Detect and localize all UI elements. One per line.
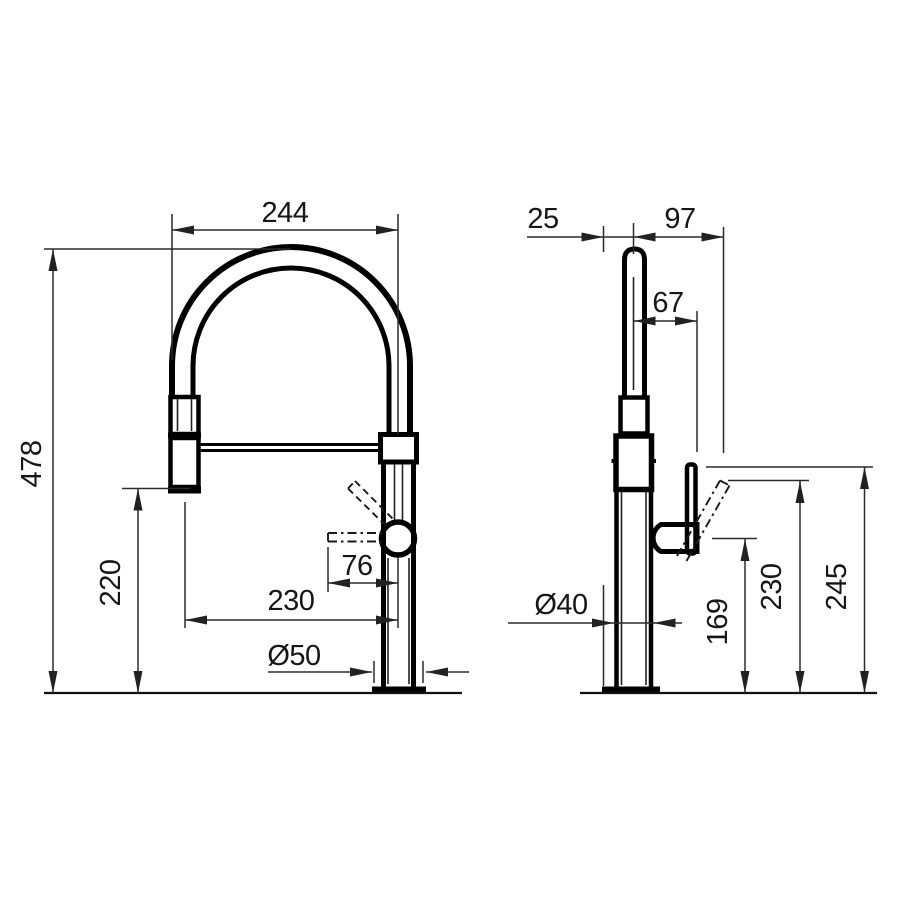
dim-50: Ø50	[267, 640, 469, 683]
spray-head-upper	[171, 397, 199, 434]
dim-label-230-side: 230	[756, 564, 788, 611]
arrow-up	[796, 481, 805, 503]
dim-label-76: 76	[341, 550, 372, 582]
spray-head-lower	[171, 438, 199, 487]
dim-230-side: 230	[728, 481, 809, 694]
arrow-right	[376, 616, 398, 625]
dim-40: Ø40	[508, 589, 682, 628]
dim-label-245: 245	[821, 564, 853, 611]
dim-label-25: 25	[527, 203, 558, 235]
arrow-down	[49, 671, 58, 693]
arrow-up	[741, 539, 750, 561]
arrow-down	[741, 671, 750, 693]
arrow-left	[654, 619, 676, 628]
arrow-right	[376, 579, 398, 588]
handle-lever-side	[687, 465, 696, 554]
dim-label-478: 478	[16, 441, 48, 488]
dim-label-244: 244	[262, 197, 309, 229]
spout-inner-arc	[193, 268, 389, 366]
collar-side	[616, 436, 652, 490]
technical-drawing-page: 244 478 220 230	[0, 0, 900, 900]
dim-label-169: 169	[702, 599, 734, 646]
dim-220: 220	[95, 489, 190, 694]
dim-label-97: 97	[664, 203, 695, 235]
arrow-down	[796, 671, 805, 693]
front-view: 244 478 220 230	[16, 197, 469, 694]
arrow-right	[350, 668, 372, 677]
side-view: 25 97 67 Ø40 169	[508, 203, 877, 694]
arrow-left	[426, 668, 448, 677]
arrow-left	[172, 226, 194, 235]
dim-478: 478	[16, 249, 291, 693]
handle-phantom-horizontal	[328, 533, 383, 542]
dim-label-220: 220	[95, 560, 127, 607]
arrow-down	[134, 671, 143, 693]
faucet-front-body	[168, 247, 426, 694]
arrow-left	[634, 233, 656, 242]
dim-label-67: 67	[652, 287, 683, 319]
arrow-left	[185, 616, 207, 625]
collar-front	[381, 435, 417, 463]
dim-label-40: Ø40	[534, 589, 587, 621]
arrow-right-2	[702, 233, 724, 242]
dim-label-50: Ø50	[267, 640, 320, 672]
dim-169: 169	[702, 539, 757, 694]
arrow-down	[860, 671, 869, 693]
arrow-right	[582, 233, 604, 242]
dim-label-230-front: 230	[268, 585, 315, 617]
spout-outer-arc	[172, 247, 410, 366]
arrow-up	[134, 489, 143, 511]
faucet-dimension-drawing: 244 478 220 230	[0, 0, 900, 900]
spout-tube-side	[625, 249, 645, 397]
neck-section-side	[621, 398, 648, 434]
arrow-right	[376, 226, 398, 235]
arrow-up	[49, 249, 58, 271]
arrow-up	[860, 467, 869, 489]
handle-body-side	[653, 525, 697, 552]
handle-pivot-circle	[382, 522, 415, 555]
dim-245: 245	[706, 467, 873, 693]
